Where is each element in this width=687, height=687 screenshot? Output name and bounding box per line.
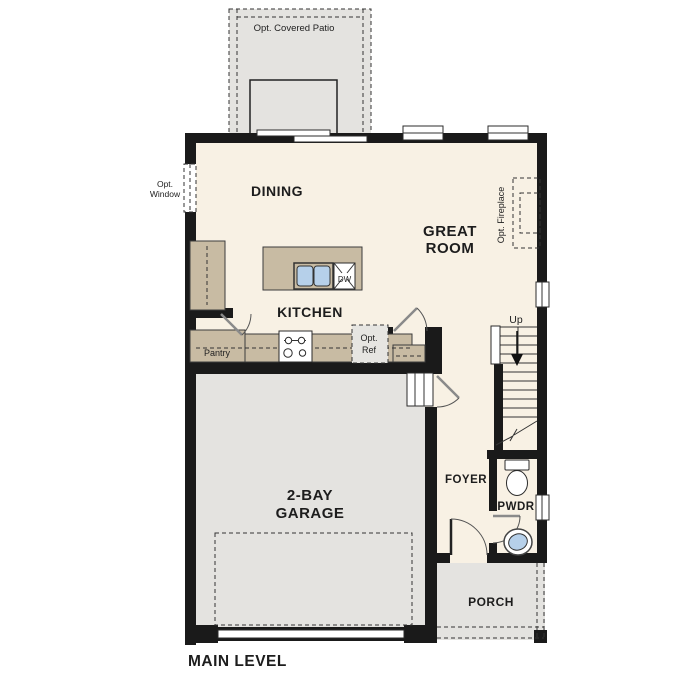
toilet-bowl (507, 471, 528, 496)
stove-burner-3 (284, 349, 292, 357)
toilet (505, 460, 529, 496)
garage-label-2: GARAGE (276, 505, 345, 522)
plan-title: MAIN LEVEL (188, 653, 287, 670)
opt-window-label-2: Window (150, 189, 181, 199)
patio-region: Opt. Covered Patio (229, 9, 371, 135)
floor-plan-svg: Opt. Covered Patio (0, 0, 687, 687)
dishwasher: DW (334, 263, 355, 289)
wall-garage-corner-right (404, 625, 437, 643)
dishwasher-label: DW (338, 275, 352, 284)
powder-sink (504, 529, 532, 555)
stairs-up-label: Up (509, 314, 523, 326)
optional-refrigerator: Opt. Ref (352, 325, 388, 363)
wall-closet-right (425, 327, 442, 367)
wall-powder-west-lower (489, 543, 497, 555)
wall-powder-west-upper (489, 459, 497, 511)
sink-basin-left (297, 266, 313, 286)
garage-entry-steps (407, 373, 433, 406)
pantry-label: Pantry (204, 348, 231, 358)
opt-fireplace-label: Opt. Fireplace (496, 187, 506, 244)
stairs-handrail (491, 326, 500, 364)
stove-burner-4 (299, 350, 305, 356)
toilet-tank (505, 460, 529, 470)
wall-stairs-powder-divider (487, 450, 547, 459)
range-stove (279, 331, 312, 362)
dining-label: DINING (251, 183, 303, 199)
powder-label: PWDR (497, 501, 534, 513)
sink-basin-right (314, 266, 330, 286)
opt-ref-label-2: Ref (362, 345, 377, 355)
wall-garage-corner-left (185, 625, 218, 643)
patio-pad (250, 80, 337, 135)
opt-ref-label-1: Opt. (360, 333, 377, 343)
patio-label: Opt. Covered Patio (254, 23, 335, 34)
sliding-door-panel-left (257, 130, 330, 136)
optional-window: Opt. Window (150, 164, 196, 212)
kitchen-island: DW (263, 247, 362, 290)
stove-burner-2 (298, 337, 304, 343)
powder-window (536, 495, 549, 520)
opt-ref-box (352, 325, 388, 363)
wall-kitchen-garage (185, 362, 442, 374)
stove-box (279, 331, 312, 362)
sliding-door-panel-right (294, 136, 367, 142)
floor-plan-canvas: Opt. Covered Patio (0, 0, 687, 687)
wall-porch-corner (534, 630, 547, 643)
front-door-opening (450, 553, 487, 563)
great-room-label-1: GREAT (423, 223, 477, 240)
entry-steps-box (407, 373, 433, 406)
great-room-label-2: ROOM (426, 240, 475, 257)
stove-burner-1 (285, 337, 291, 343)
opt-window-label-1: Opt. (157, 179, 173, 189)
wall-garage-foyer (425, 407, 437, 643)
foyer-label: FOYER (445, 474, 487, 486)
garage-label-1: 2-BAY (287, 487, 333, 504)
wall-stairs-left (494, 364, 503, 454)
kitchen-label: KITCHEN (277, 304, 343, 320)
porch-label: PORCH (468, 595, 514, 609)
garage-vehicle-door (218, 630, 404, 638)
